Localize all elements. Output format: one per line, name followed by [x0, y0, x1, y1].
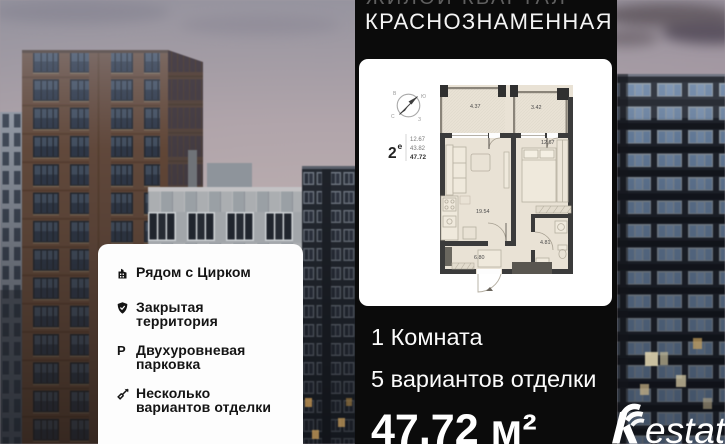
svg-text:е: е — [398, 141, 403, 151]
svg-text:47.72: 47.72 — [410, 154, 426, 161]
svg-text:В: В — [393, 91, 397, 97]
svg-text:43.82: 43.82 — [410, 146, 426, 152]
svg-text:6.80: 6.80 — [474, 255, 485, 261]
svg-text:12.67: 12.67 — [410, 137, 426, 143]
svg-text:estate: estate — [645, 410, 725, 444]
svg-text:Ю: Ю — [421, 94, 426, 100]
svg-text:З: З — [418, 117, 421, 123]
svg-text:С: С — [391, 114, 395, 120]
svg-text:4.37: 4.37 — [470, 104, 481, 110]
svg-text:12.67: 12.67 — [541, 140, 555, 146]
svg-text:2: 2 — [388, 145, 397, 162]
svg-text:4.81: 4.81 — [540, 240, 551, 246]
svg-text:19.54: 19.54 — [476, 209, 490, 215]
svg-text:3.42: 3.42 — [531, 105, 542, 111]
